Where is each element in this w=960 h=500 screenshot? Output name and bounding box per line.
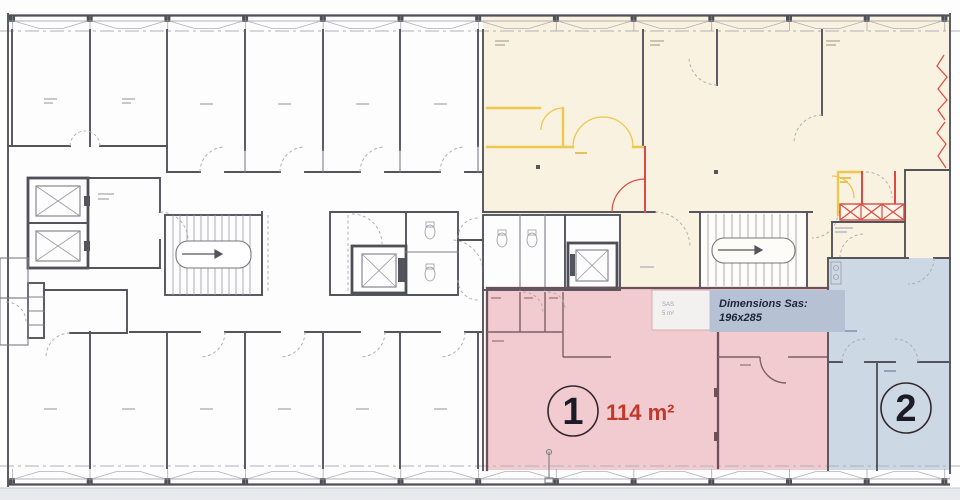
zone-unit2-overlay[interactable] xyxy=(828,258,950,470)
dimensions-box xyxy=(710,290,845,332)
wc-block xyxy=(406,218,478,300)
core-middle xyxy=(262,212,483,300)
service-shaft xyxy=(28,283,44,338)
stairwell-left xyxy=(165,215,262,295)
dimensions-value: 196x285 xyxy=(719,312,763,324)
unit2-number: 2 xyxy=(895,388,916,430)
page-bottom-strip xyxy=(0,488,960,500)
unit1-area-label: 114 m² xyxy=(606,400,675,425)
dimensions-title: Dimensions Sas: xyxy=(719,298,808,310)
left-annex xyxy=(0,258,28,345)
elevator-bank xyxy=(28,178,90,268)
facade-bottom xyxy=(0,466,960,486)
top-band-rooms xyxy=(8,30,483,212)
elevator-middle xyxy=(352,246,406,293)
floor-plan-page: SAS 5 m² Dimensions Sas: 196x285 1 114 m… xyxy=(0,0,960,500)
red-hatched-wall xyxy=(840,204,904,220)
bottom-band-rooms xyxy=(90,240,483,470)
dimensions-callout: SAS 5 m² Dimensions Sas: 196x285 xyxy=(652,290,845,332)
sas-room-area: 5 m² xyxy=(662,311,674,317)
sas-room-box xyxy=(652,290,710,330)
unit1-number: 1 xyxy=(562,391,583,433)
sas-room-name: SAS xyxy=(662,302,674,308)
facade-top xyxy=(0,14,960,32)
utility-room xyxy=(44,290,127,357)
floor-plan-canvas: SAS 5 m² Dimensions Sas: 196x285 1 114 m… xyxy=(0,0,960,500)
